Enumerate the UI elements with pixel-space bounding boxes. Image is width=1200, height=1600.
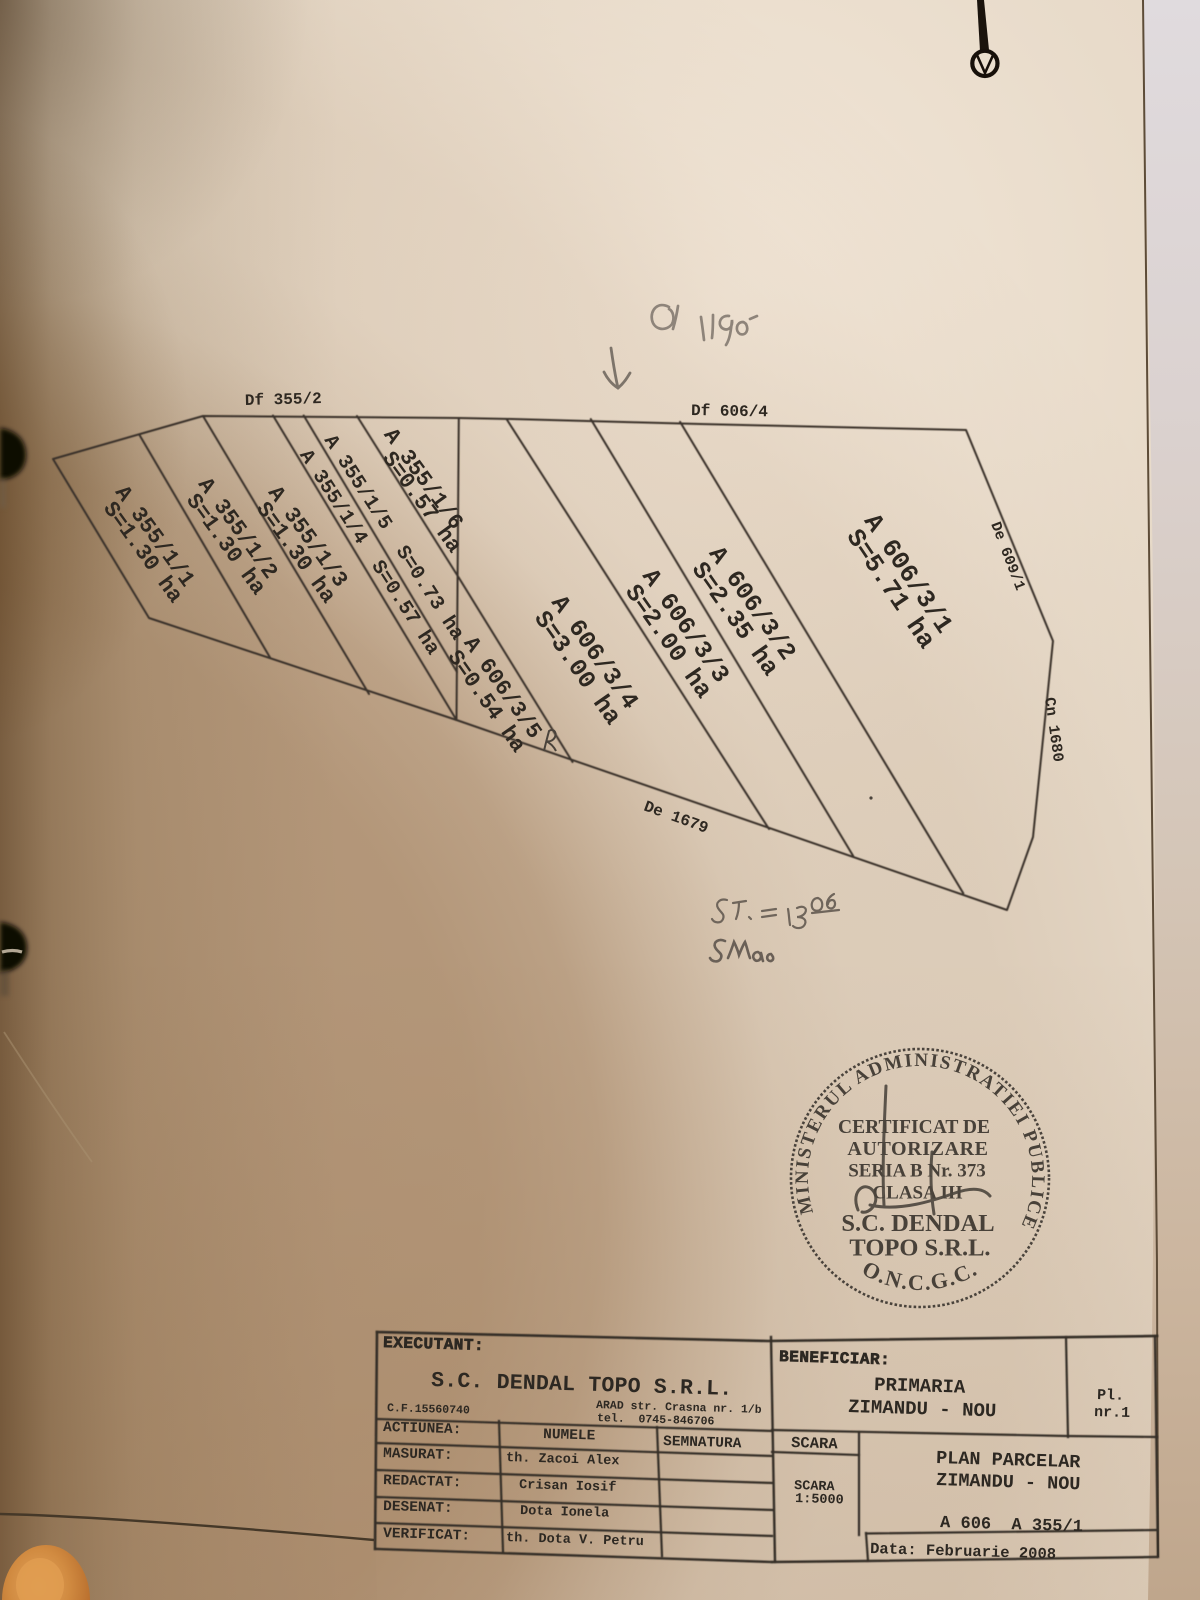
svg-text:CLASA III: CLASA III: [872, 1183, 962, 1204]
svg-text:DESENAT:: DESENAT:: [383, 1499, 453, 1517]
svg-text:Df 606/4: Df 606/4: [691, 402, 769, 421]
svg-text:Pl.: Pl.: [1097, 1387, 1125, 1405]
svg-text:Dota Ionela: Dota Ionela: [520, 1504, 610, 1522]
svg-text:CERTIFICAT DE: CERTIFICAT DE: [838, 1117, 990, 1138]
svg-text:PRIMARIA: PRIMARIA: [874, 1374, 966, 1399]
svg-text:C.F.15560740: C.F.15560740: [387, 1402, 470, 1417]
svg-text:NUMELE: NUMELE: [543, 1427, 596, 1445]
svg-text:SEMNATURA: SEMNATURA: [663, 1434, 742, 1452]
svg-text:nr.1: nr.1: [1094, 1404, 1131, 1422]
svg-text:ZIMANDU - NOU: ZIMANDU - NOU: [848, 1396, 997, 1422]
svg-text:Crisan Iosif: Crisan Iosif: [519, 1478, 617, 1496]
svg-text:Df 355/2: Df 355/2: [245, 390, 322, 410]
svg-text:BENEFICIAR:: BENEFICIAR:: [779, 1348, 891, 1369]
svg-text:VERIFICAT:: VERIFICAT:: [383, 1526, 470, 1545]
svg-text:SCARA: SCARA: [791, 1434, 839, 1453]
svg-text:EXECUTANT:: EXECUTANT:: [383, 1334, 485, 1355]
svg-text:S.C. DENDAL: S.C. DENDAL: [841, 1210, 994, 1237]
svg-text:SERIA B Nr. 373: SERIA B Nr. 373: [848, 1161, 986, 1182]
svg-text:PLAN PARCELAR: PLAN PARCELAR: [936, 1448, 1082, 1473]
svg-text:AUTORIZARE: AUTORIZARE: [847, 1138, 988, 1160]
svg-text:REDACTAT:: REDACTAT:: [383, 1473, 462, 1491]
svg-text:ACTIUNEA:: ACTIUNEA:: [383, 1420, 462, 1438]
svg-text:1:5000: 1:5000: [795, 1492, 844, 1508]
svg-text:MASURAT:: MASURAT:: [383, 1446, 453, 1464]
svg-text:ZIMANDU - NOU: ZIMANDU - NOU: [936, 1470, 1081, 1495]
